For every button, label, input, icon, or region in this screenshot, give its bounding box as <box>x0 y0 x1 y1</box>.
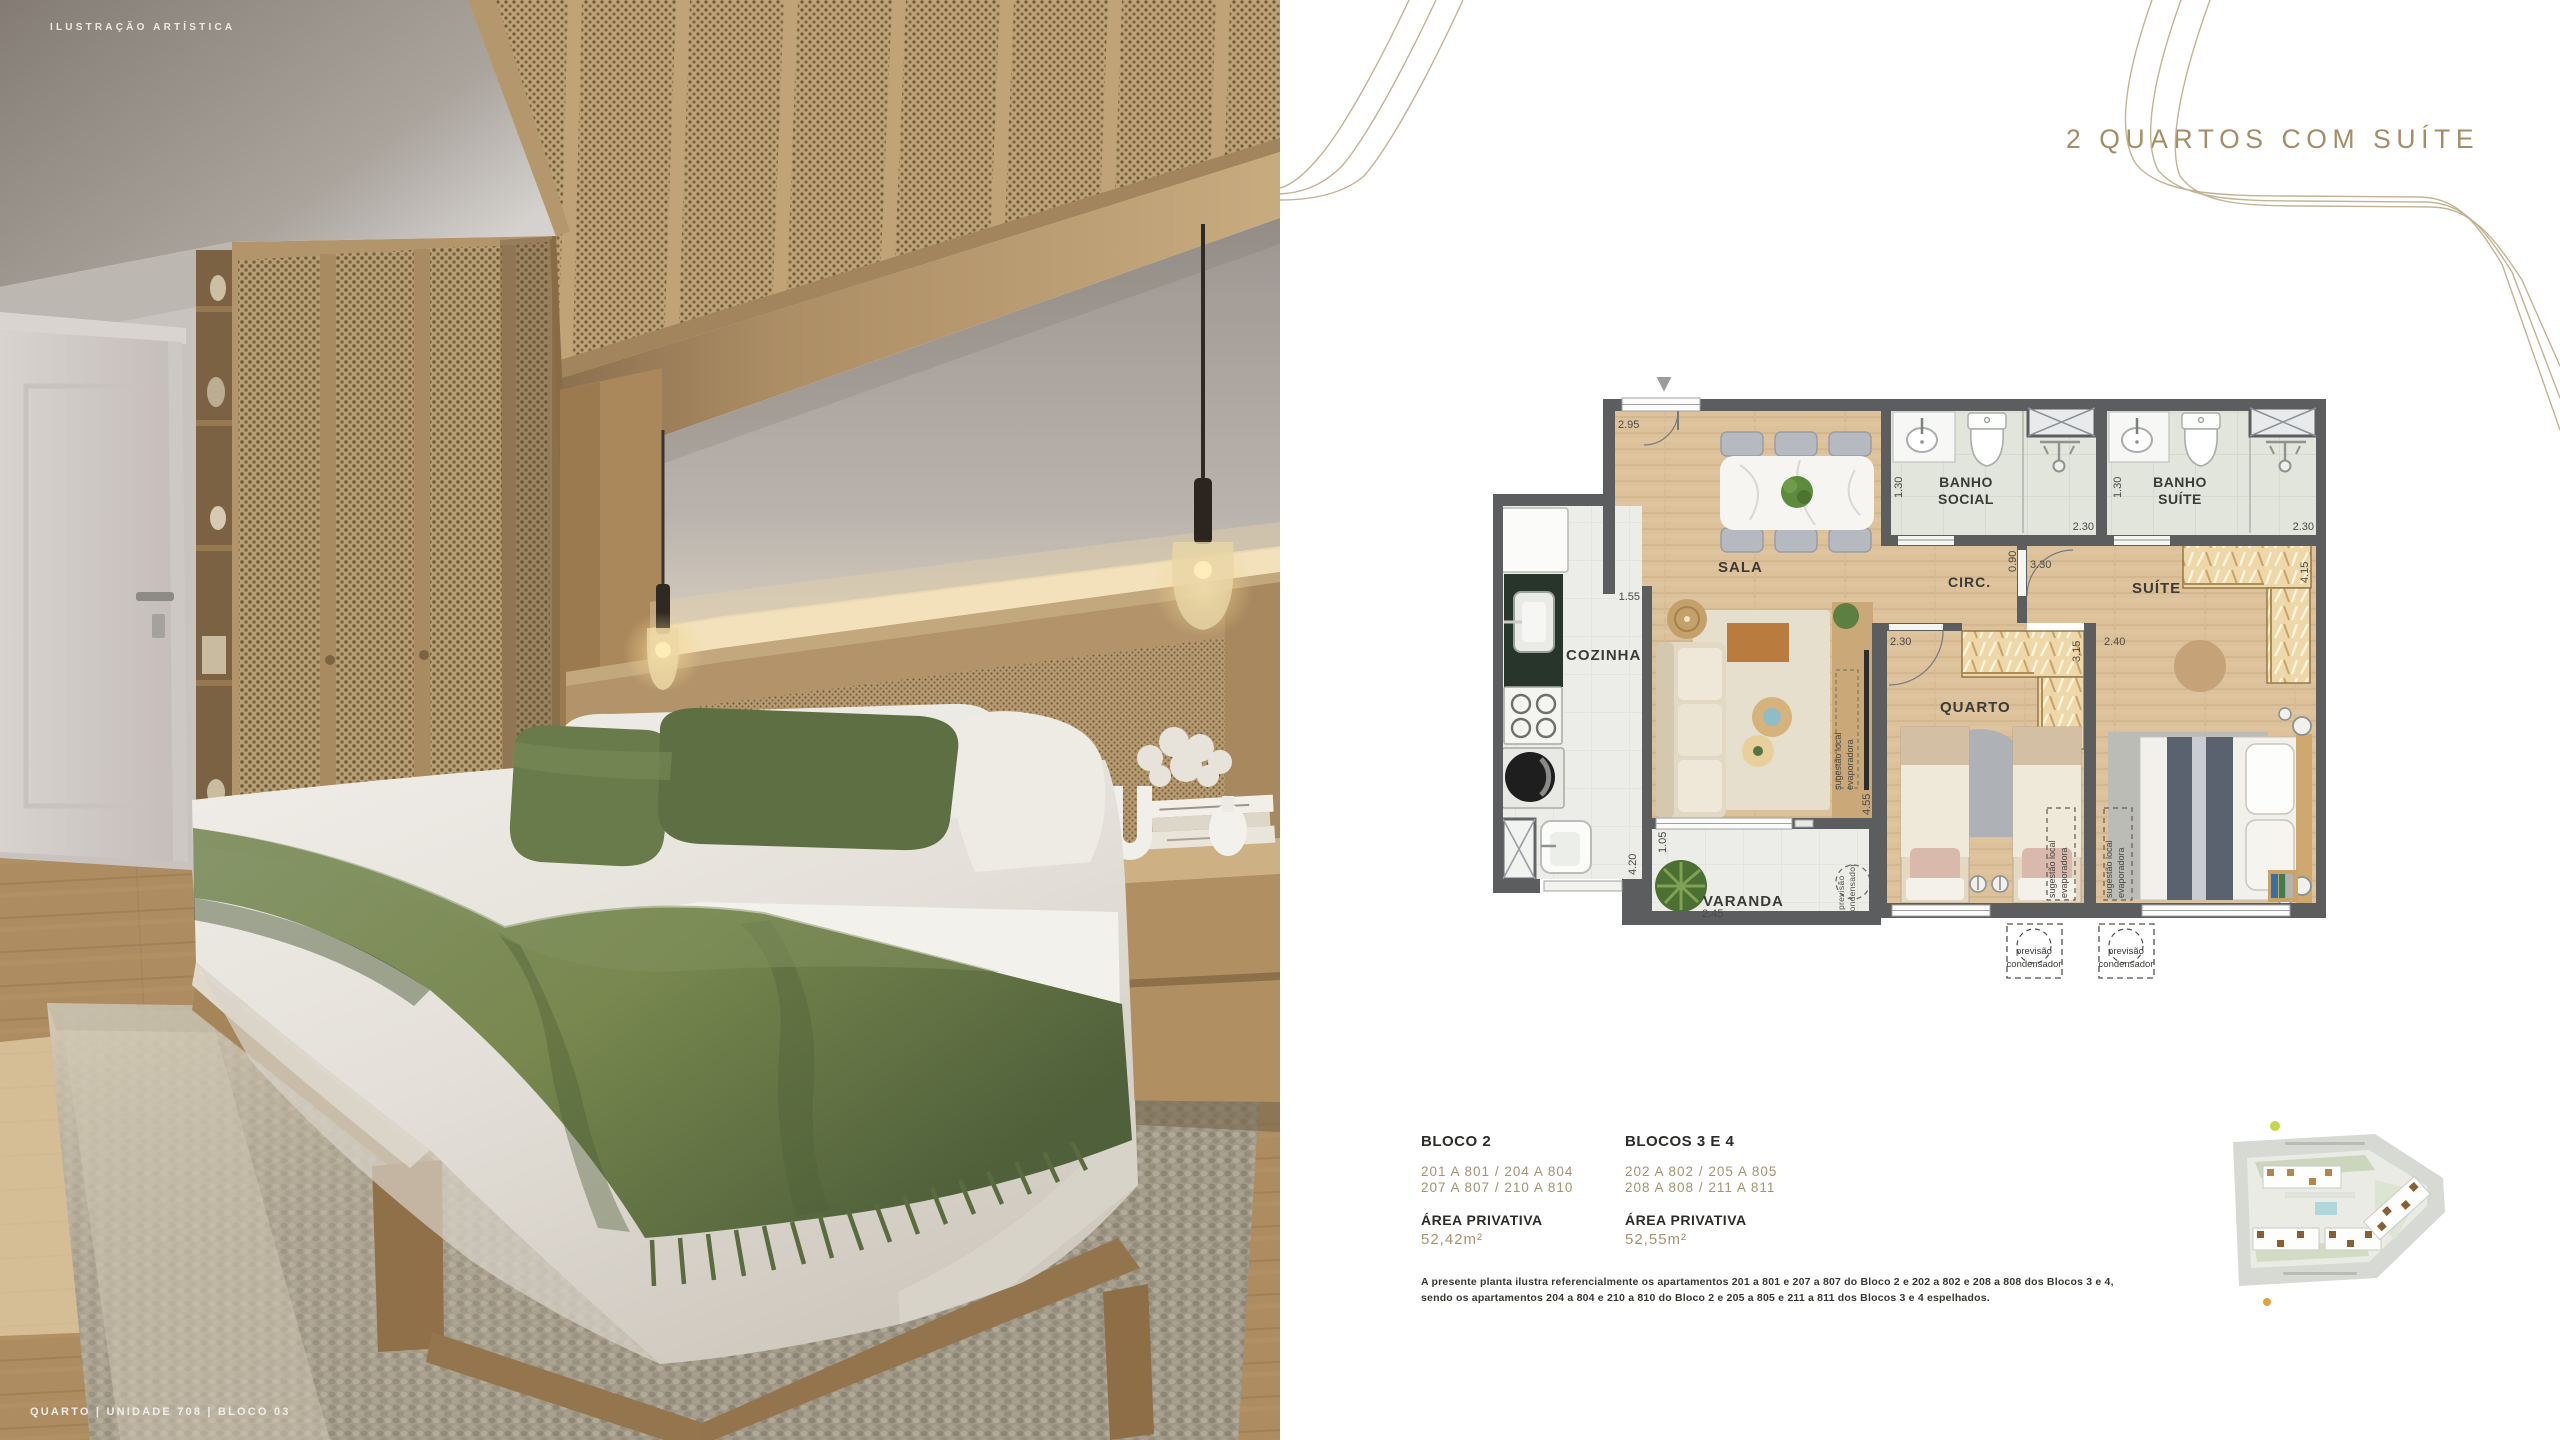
svg-text:1.55: 1.55 <box>1619 591 1640 603</box>
svg-text:2.30: 2.30 <box>1890 636 1911 648</box>
svg-text:2.30: 2.30 <box>2073 521 2094 533</box>
svg-text:condensador: condensador <box>2099 959 2154 970</box>
svg-text:COZINHA: COZINHA <box>1566 647 1641 664</box>
svg-text:evaporadora: evaporadora <box>1845 739 1855 790</box>
svg-text:1.30: 1.30 <box>2112 477 2124 498</box>
svg-text:SUÍTE: SUÍTE <box>2132 580 2181 597</box>
svg-text:previsão: previsão <box>2016 946 2052 957</box>
svg-text:4.15: 4.15 <box>2299 562 2311 583</box>
svg-text:2.45: 2.45 <box>1702 908 1723 920</box>
svg-text:SUÍTE: SUÍTE <box>2158 491 2202 507</box>
svg-text:4.20: 4.20 <box>1627 854 1639 875</box>
svg-text:condensador: condensador <box>2007 959 2062 970</box>
svg-text:1.05: 1.05 <box>1657 832 1669 853</box>
svg-text:CIRC.: CIRC. <box>1948 574 1991 590</box>
svg-text:0.90: 0.90 <box>2007 551 2019 572</box>
svg-text:3.30: 3.30 <box>2030 559 2051 571</box>
svg-text:2.40: 2.40 <box>2104 636 2125 648</box>
svg-text:QUARTO: QUARTO <box>1940 699 2011 716</box>
svg-text:sugestão local: sugestão local <box>2047 840 2057 898</box>
svg-text:sugestão local: sugestão local <box>2104 840 2114 898</box>
svg-text:4.55: 4.55 <box>1861 794 1873 815</box>
svg-text:2.95: 2.95 <box>1618 419 1639 431</box>
svg-text:BANHO: BANHO <box>1939 474 1993 490</box>
svg-text:sugestão local: sugestão local <box>1833 732 1843 790</box>
svg-text:condensador: condensador <box>1847 864 1857 916</box>
svg-text:evaporadora: evaporadora <box>2116 847 2126 898</box>
svg-text:evaporadora: evaporadora <box>2059 847 2069 898</box>
svg-text:2.30: 2.30 <box>2293 521 2314 533</box>
svg-text:SOCIAL: SOCIAL <box>1938 491 1994 507</box>
svg-text:previsão: previsão <box>1836 875 1846 910</box>
svg-text:SALA: SALA <box>1718 559 1763 576</box>
svg-text:previsão: previsão <box>2108 946 2144 957</box>
svg-text:BANHO: BANHO <box>2153 474 2207 490</box>
svg-text:3.15: 3.15 <box>2071 641 2083 662</box>
svg-text:1.30: 1.30 <box>1893 477 1905 498</box>
